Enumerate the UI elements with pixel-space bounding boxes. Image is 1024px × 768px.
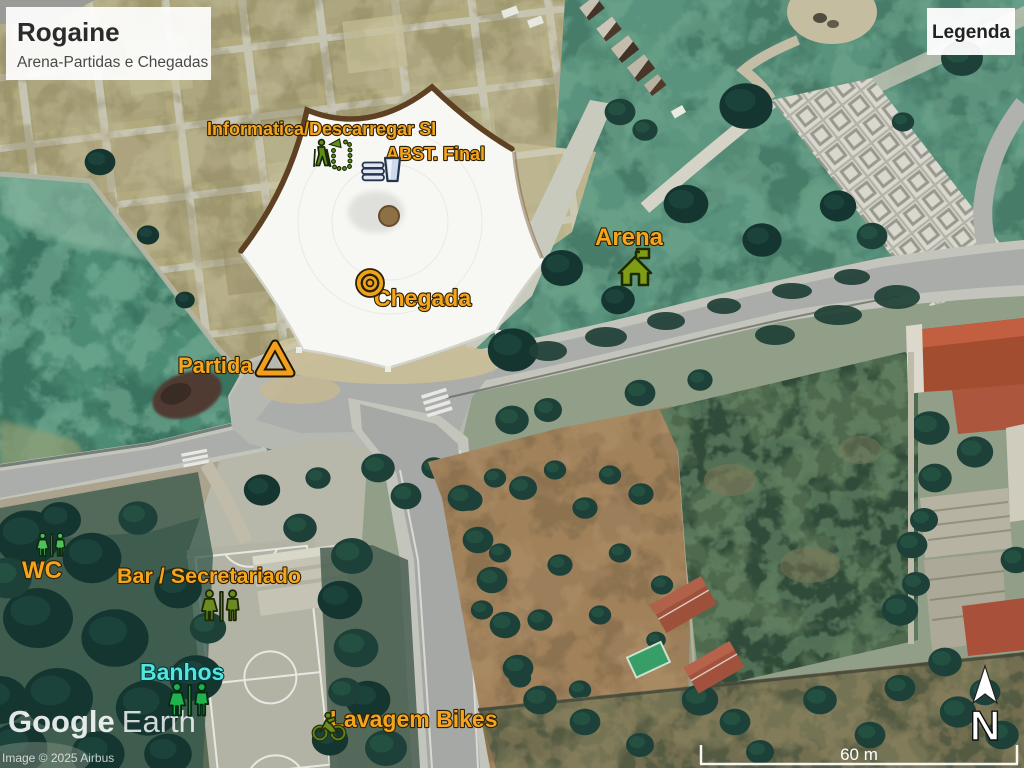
svg-text:60 m: 60 m [840, 745, 878, 764]
svg-text:Arena-Partidas e Chegadas: Arena-Partidas e Chegadas [17, 54, 209, 71]
svg-text:Informatica/Descarregar SI: Informatica/Descarregar SI [207, 119, 436, 139]
svg-text:Image © 2025 Airbus: Image © 2025 Airbus [2, 751, 114, 765]
svg-text:Rogaine: Rogaine [17, 17, 120, 47]
svg-text:ABST. Final: ABST. Final [386, 144, 485, 164]
svg-text:Legenda: Legenda [932, 22, 1011, 43]
svg-text:Banhos: Banhos [140, 659, 224, 685]
svg-text:N: N [970, 702, 1000, 749]
svg-text:Arena: Arena [595, 224, 664, 251]
svg-text:Lavagem Bikes: Lavagem Bikes [330, 706, 497, 732]
svg-text:Chegada: Chegada [374, 285, 471, 311]
svg-text:GoogleEarth: GoogleEarth [8, 704, 196, 739]
svg-text:Bar / Secretariado: Bar / Secretariado [117, 564, 301, 588]
svg-text:Partida: Partida [178, 353, 253, 378]
svg-text:WC: WC [22, 557, 62, 584]
